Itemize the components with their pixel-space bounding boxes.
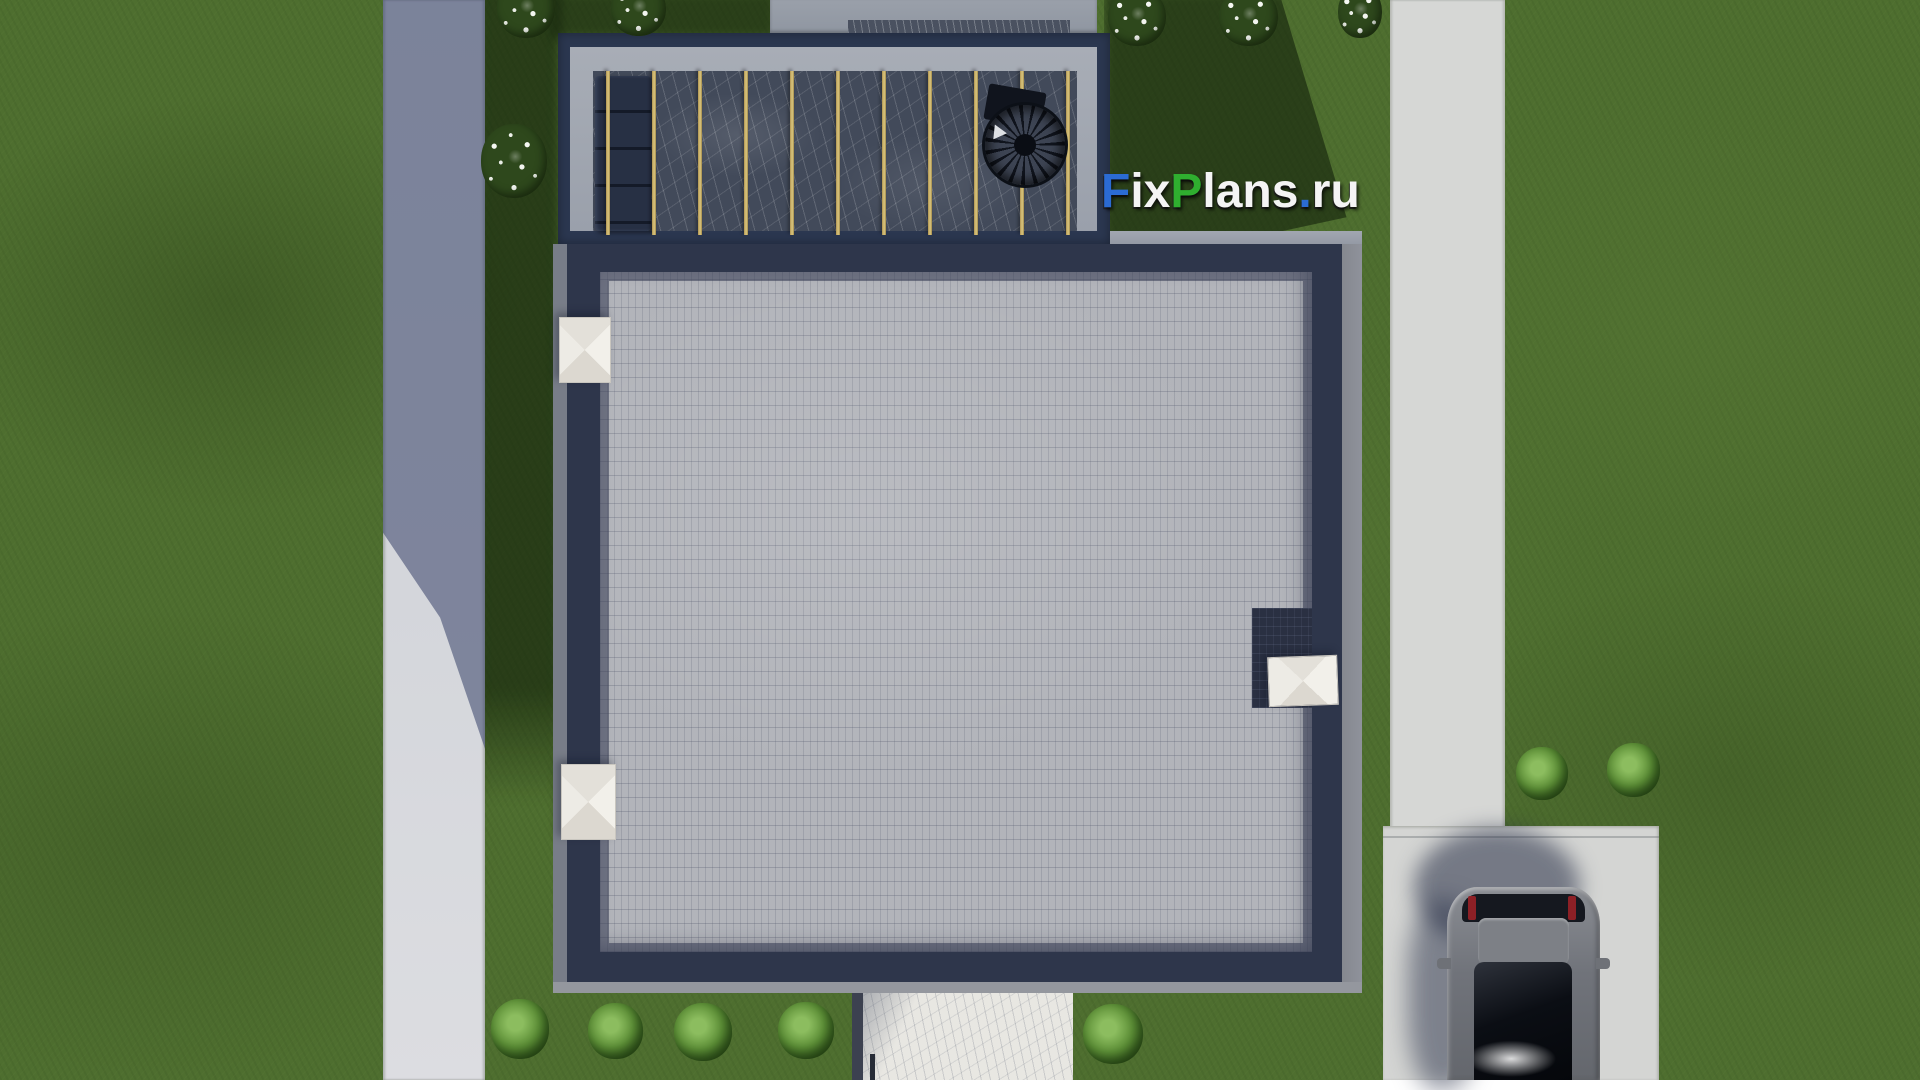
car-taillight-icon	[1568, 896, 1576, 920]
skylight-icon	[561, 764, 616, 840]
marble-walkway	[852, 992, 1073, 1080]
garden-bush	[1607, 743, 1660, 797]
watermark-segment: lans	[1202, 165, 1298, 218]
car-windshield	[1474, 962, 1572, 1080]
skylight-icon	[559, 317, 611, 383]
spiral-staircase-center	[1014, 134, 1036, 156]
roof-paver-field	[600, 272, 1312, 952]
watermark-segment: ru	[1312, 165, 1360, 218]
garden-bush	[674, 1003, 732, 1061]
right-road	[1390, 0, 1505, 832]
garden-bush	[778, 1002, 834, 1059]
watermark-segment: F	[1101, 165, 1130, 218]
watermark-segment: .	[1298, 165, 1311, 218]
skylight-icon	[1267, 655, 1339, 707]
watermark-logo: FixPlans.ru	[1101, 164, 1360, 219]
grass-shadow-left	[478, 0, 560, 802]
garden-bush	[1083, 1004, 1143, 1064]
car-mirror-left	[1437, 958, 1451, 969]
garden-bush	[491, 999, 549, 1059]
garden-bush	[588, 1003, 643, 1059]
watermark-segment: P	[1170, 165, 1202, 218]
roof-wall-right	[1342, 244, 1362, 993]
outdoor-sofa	[595, 76, 651, 231]
roof-wall-bottom	[553, 982, 1362, 993]
walkway-detail	[870, 1054, 875, 1080]
watermark-segment: ix	[1130, 165, 1170, 218]
flower-bush	[481, 124, 547, 198]
car-roof-panel	[1478, 918, 1569, 965]
walkway-dark-edge	[852, 992, 863, 1080]
car-mirror-right	[1596, 958, 1610, 969]
platform-tile-strip	[848, 20, 1070, 33]
car-taillight-icon	[1468, 896, 1476, 920]
garden-bush	[1516, 747, 1568, 800]
